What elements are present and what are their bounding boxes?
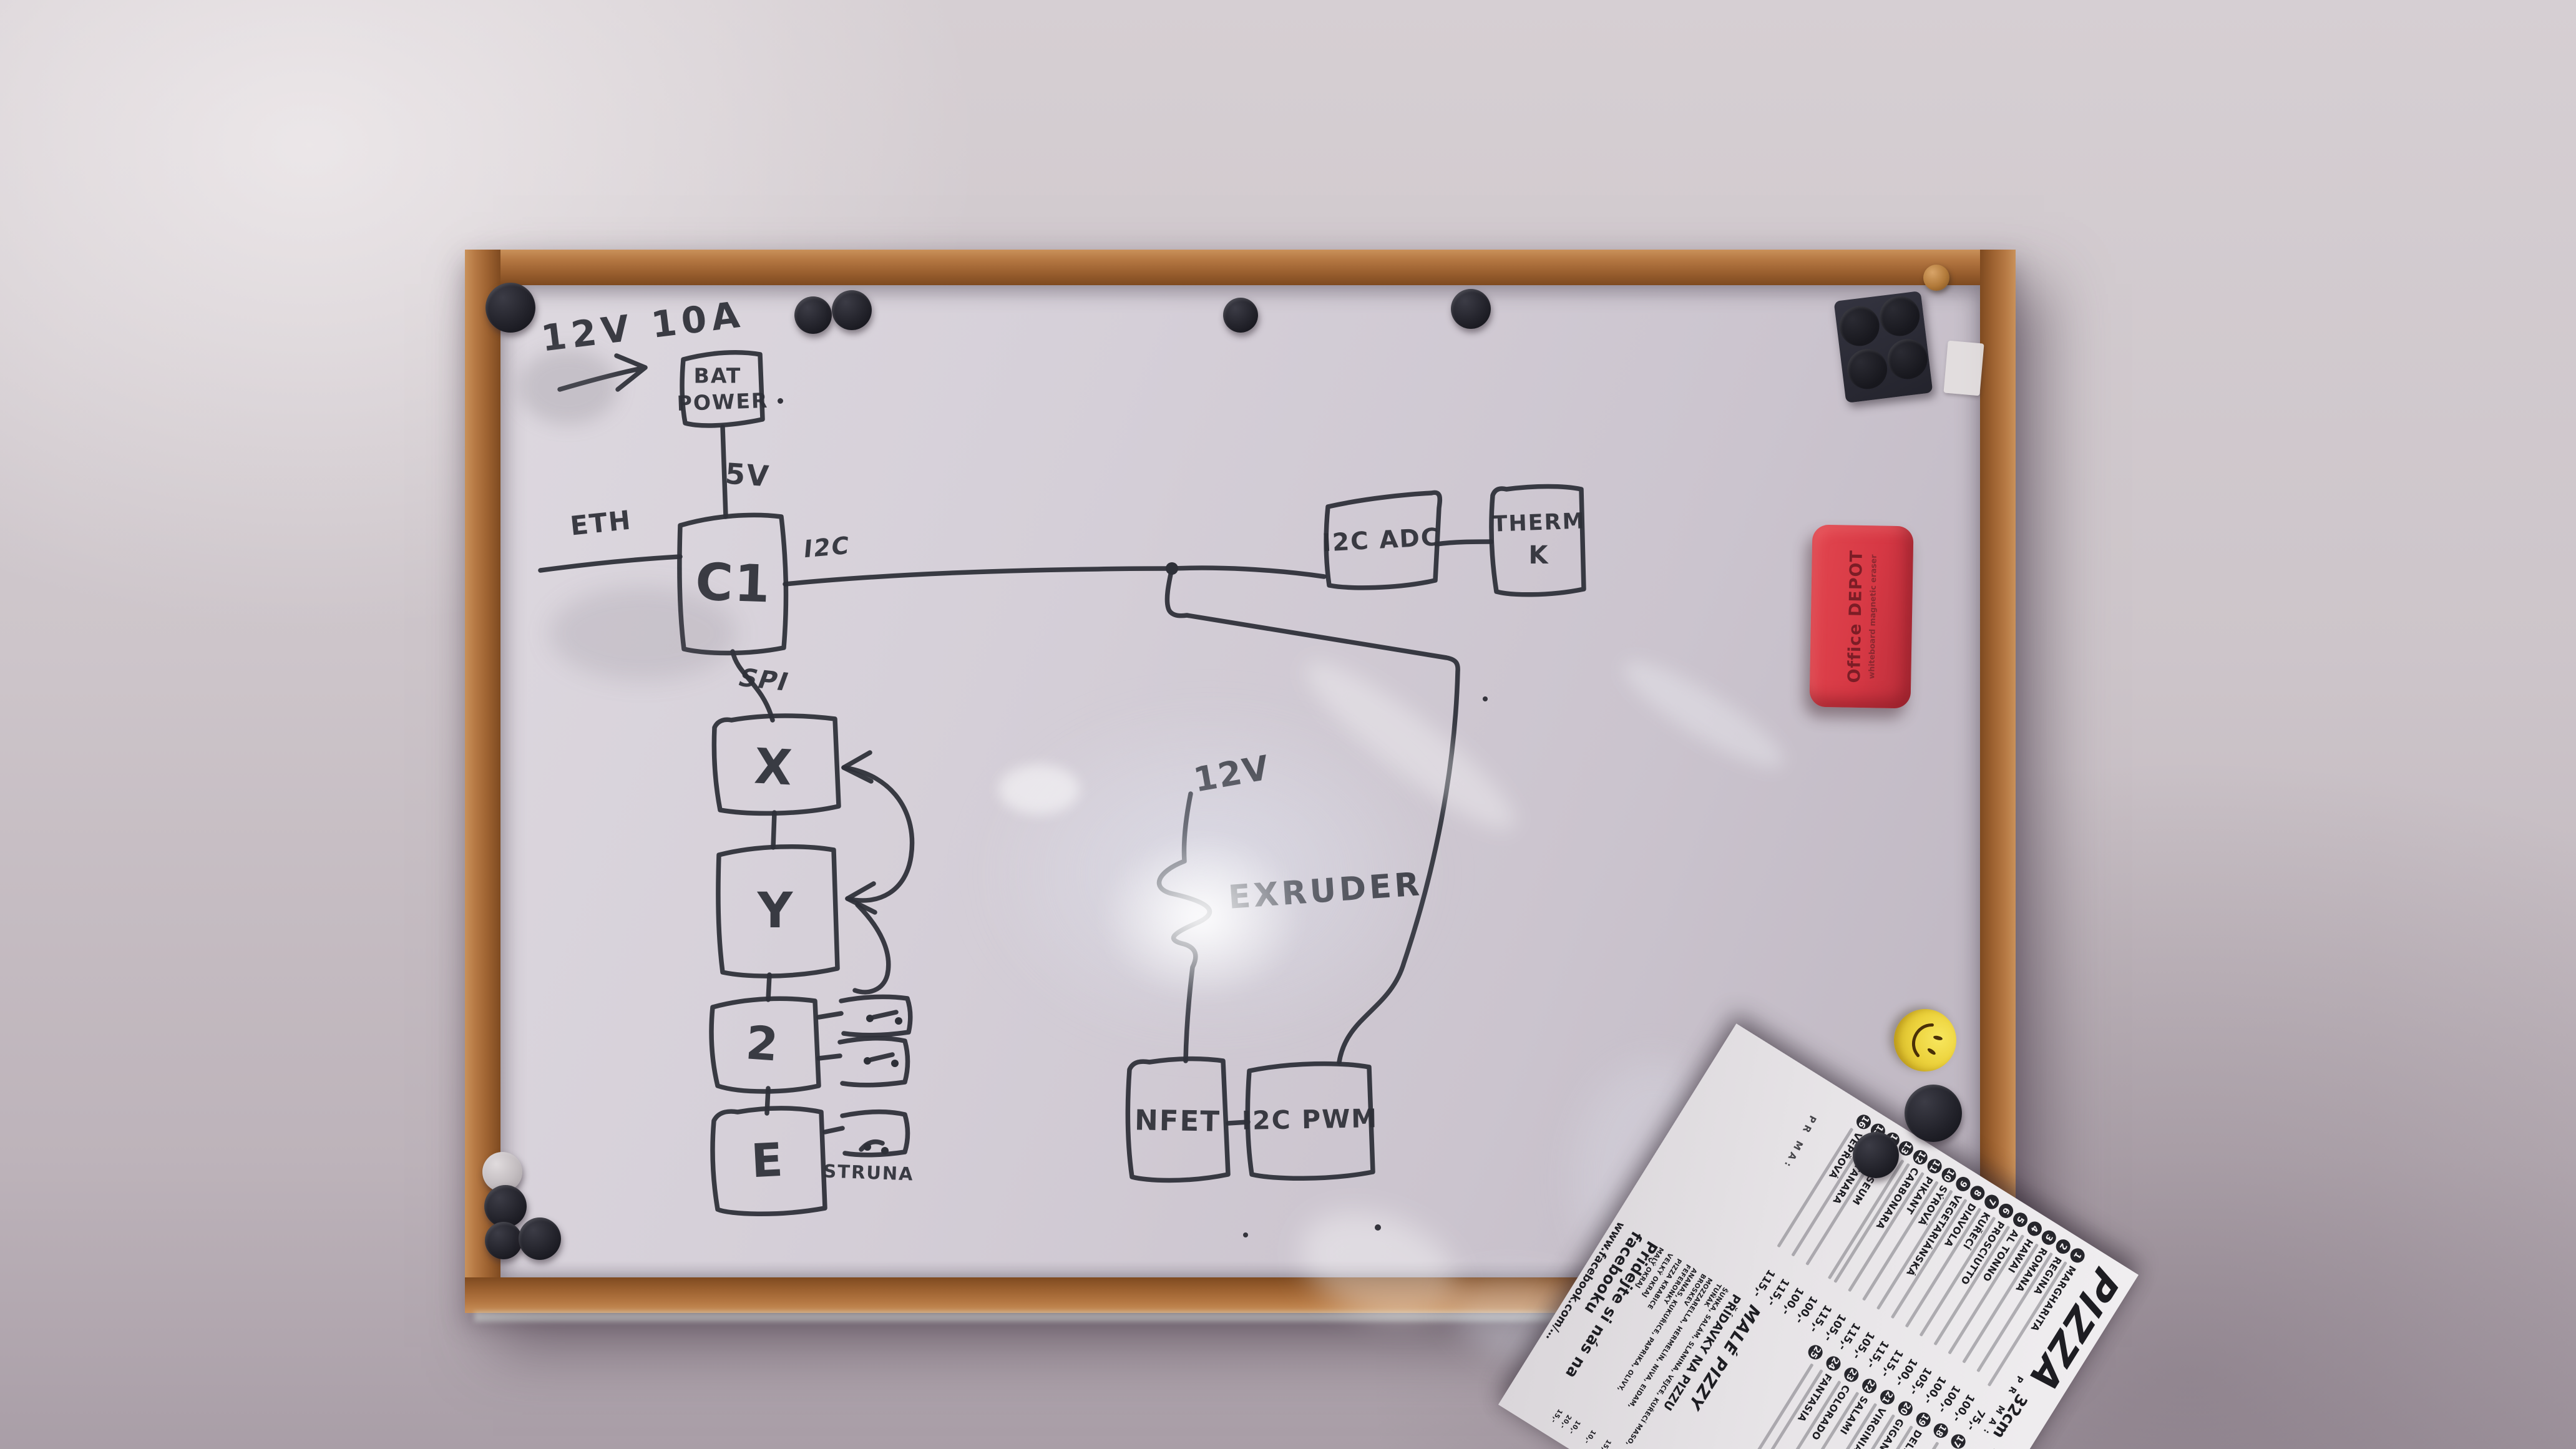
tray-magnet-4 bbox=[1885, 337, 1930, 381]
whiteboard-eraser: Office DEPOT whiteboard magnetic eraser bbox=[1809, 525, 1913, 709]
magnet-top-pair-a bbox=[794, 296, 832, 334]
addon-price: 15,- bbox=[1592, 1434, 1612, 1449]
frame-top bbox=[465, 250, 2016, 285]
label-struna: STRUNA bbox=[823, 1160, 914, 1184]
label-y: Y bbox=[758, 883, 794, 939]
board-speck-4 bbox=[1375, 1224, 1381, 1231]
tray-magnet-3 bbox=[1845, 347, 1889, 391]
item-number: 18 bbox=[1931, 1421, 1951, 1441]
label-x: X bbox=[753, 738, 795, 796]
label-c1: C1 bbox=[695, 552, 772, 614]
tray-magnet-2 bbox=[1877, 294, 1921, 338]
item-number: 24 bbox=[1823, 1354, 1843, 1373]
board-speck-2 bbox=[1483, 696, 1488, 701]
tape-piece bbox=[1943, 341, 1984, 396]
menu-size-hints: PR MA: bbox=[1778, 1112, 1821, 1173]
label-pwm: I2C PWM bbox=[1241, 1103, 1378, 1136]
magnet-bottom-b bbox=[485, 1222, 522, 1259]
label-therm-line1: THERM bbox=[1492, 509, 1586, 537]
label-spi: SPI bbox=[734, 664, 794, 697]
item-number: 22 bbox=[1860, 1376, 1880, 1396]
menu-logo: BSM bbox=[1967, 1446, 2016, 1449]
magnet-bottom-c bbox=[519, 1217, 561, 1260]
magnet-bottom-a bbox=[484, 1185, 527, 1227]
magnet-on-menu-2 bbox=[1853, 1132, 1899, 1178]
magnet-top-mid bbox=[1223, 298, 1258, 333]
item-number: 1 bbox=[2067, 1246, 2087, 1266]
item-number: 23 bbox=[1842, 1365, 1861, 1385]
menu-logo-letter: B bbox=[1975, 1446, 2016, 1449]
label-bat-line2: POWER bbox=[676, 388, 769, 416]
item-number: 20 bbox=[1895, 1398, 1915, 1418]
board-speck-3 bbox=[1243, 1232, 1248, 1237]
photo-canvas: 12V 10A BAT POWER 5V ETH C1 I2C SPI X Y … bbox=[0, 0, 2576, 1449]
frame-right bbox=[1980, 250, 2016, 1313]
magnet-on-menu-1 bbox=[1905, 1085, 1962, 1142]
item-number: 25 bbox=[1805, 1342, 1825, 1362]
frame-pin bbox=[1923, 265, 1949, 291]
magnet-tray bbox=[1834, 291, 1933, 403]
item-number: 19 bbox=[1913, 1410, 1933, 1430]
label-eth: ETH bbox=[568, 504, 633, 541]
magnet-top-left bbox=[485, 283, 535, 333]
label-bat-line1: BAT bbox=[694, 364, 742, 388]
magnet-top-right bbox=[1451, 289, 1491, 329]
label-i2c: I2C bbox=[803, 532, 851, 563]
label-5v: 5V bbox=[724, 457, 771, 494]
item-number: 21 bbox=[1878, 1387, 1898, 1407]
label-e: E bbox=[750, 1133, 786, 1189]
tray-magnet-1 bbox=[1837, 304, 1881, 348]
item-number: 17 bbox=[1948, 1432, 1968, 1449]
magnet-top-pair-b bbox=[832, 290, 872, 330]
board-speck-1 bbox=[778, 398, 783, 404]
eraser-subtitle: whiteboard magnetic eraser bbox=[1866, 532, 1879, 701]
label-z: 2 bbox=[744, 1016, 781, 1072]
label-nfet: NFET bbox=[1134, 1103, 1221, 1138]
eraser-text: Office DEPOT whiteboard magnetic eraser bbox=[1845, 532, 1879, 701]
label-therm-line2: K bbox=[1529, 541, 1549, 570]
eraser-brand: Office DEPOT bbox=[1845, 532, 1867, 701]
